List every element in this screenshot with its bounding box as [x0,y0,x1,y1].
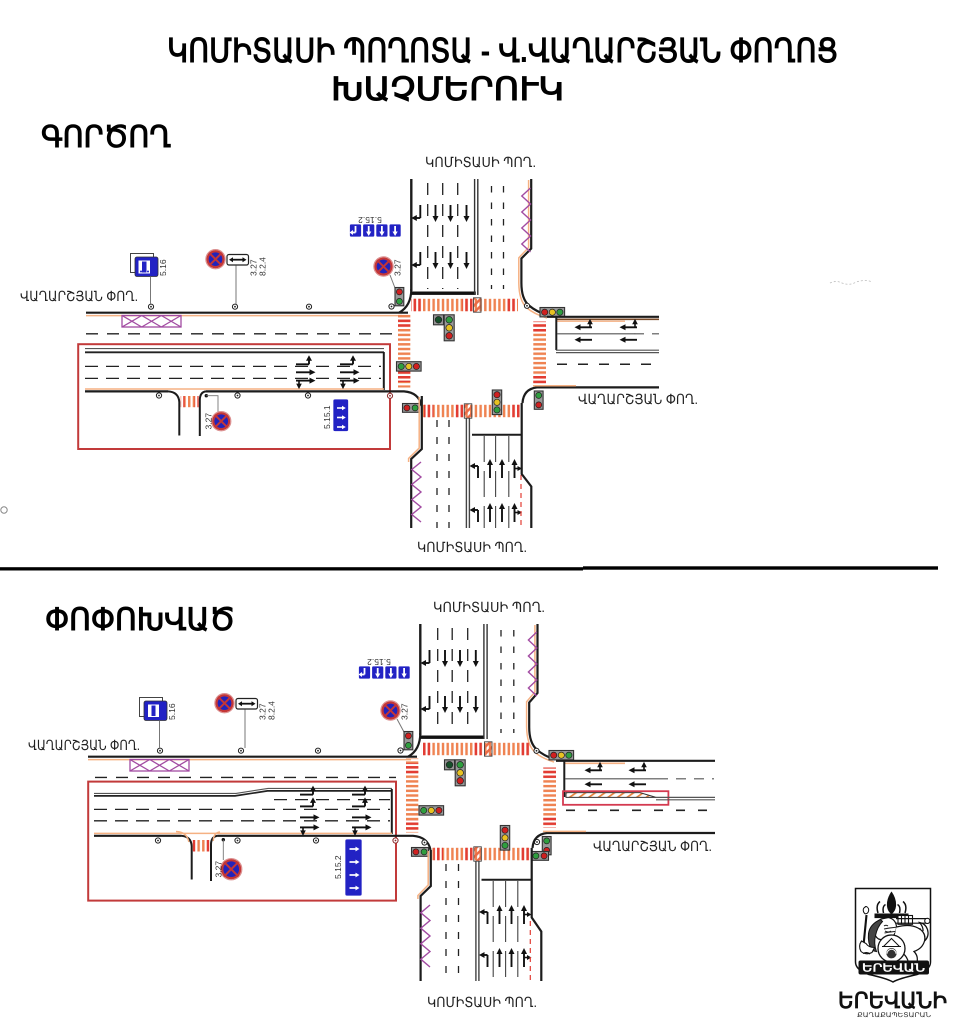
svg-text:ԿՈՄԻՏԱՍԻ ՊՈՂ.: ԿՈՄԻՏԱՍԻ ՊՈՂ. [433,599,545,615]
svg-text:3.27: 3.27 [393,259,403,276]
svg-text:ԿՈՄԻՏԱՍԻ ՊՈՂ.: ԿՈՄԻՏԱՍԻ ՊՈՂ. [427,994,537,1010]
svg-text:3.27: 3.27 [204,413,214,430]
svg-text:ԽԱՉՄԵՐՈՒԿ: ԽԱՉՄԵՐՈՒԿ [331,71,564,107]
svg-text:5.15.2: 5.15.2 [367,657,391,667]
svg-text:ՎԱՂԱՐՇՅԱՆ ՓՈՂ.: ՎԱՂԱՐՇՅԱՆ ՓՈՂ. [20,288,138,304]
svg-text:ԵՐԵՎԱՆ: ԵՐԵՎԱՆ [862,963,925,975]
svg-text:ՔԱՂԱՔԱՊԵՏԱՐԱՆ: ՔԱՂԱՔԱՊԵՏԱՐԱՆ [857,1011,931,1019]
svg-text:8.2.4: 8.2.4 [258,257,268,276]
svg-text:ԿՈՄԻՏԱՍԻ ՊՈՂ.: ԿՈՄԻՏԱՍԻ ՊՈՂ. [425,154,536,170]
svg-text:3.27: 3.27 [400,703,410,720]
svg-text:ԳՈՐԾՈՂ: ԳՈՐԾՈՂ [41,121,171,154]
svg-text:5.15.2: 5.15.2 [333,855,343,879]
svg-text:5.15.2: 5.15.2 [358,215,382,225]
svg-text:ԿՈՄԻՏԱՍԻ ՊՈՂՈՏԱ - Վ.ՎԱՂԱՐՇՅԱՆ: ԿՈՄԻՏԱՍԻ ՊՈՂՈՏԱ - Վ.ՎԱՂԱՐՇՅԱՆ ՓՈՂՈՑ [167,32,838,69]
svg-text:5.15.1: 5.15.1 [322,405,332,429]
svg-text:ՓՈՓՈԽՎԱԾ: ՓՈՓՈԽՎԱԾ [45,602,235,637]
svg-text:3.27: 3.27 [214,861,224,878]
svg-text:5.16: 5.16 [167,703,177,720]
svg-text:ՎԱՂԱՐՇՅԱՆ ՓՈՂ.: ՎԱՂԱՐՇՅԱՆ ՓՈՂ. [578,391,698,407]
svg-text:8.2.4: 8.2.4 [267,701,277,720]
svg-text:ՎԱՂԱՐՇՅԱՆ ՓՈՂ.: ՎԱՂԱՐՇՅԱՆ ՓՈՂ. [593,838,712,854]
svg-text:5.16: 5.16 [158,259,168,276]
svg-text:ԿՈՄԻՏԱՍԻ ՊՈՂ.: ԿՈՄԻՏԱՍԻ ՊՈՂ. [417,539,527,555]
svg-text:ԵՐԵՎԱՆԻ: ԵՐԵՎԱՆԻ [838,988,947,1013]
svg-text:ՎԱՂԱՐՇՅԱՆ ՓՈՂ.: ՎԱՂԱՐՇՅԱՆ ՓՈՂ. [28,737,140,753]
